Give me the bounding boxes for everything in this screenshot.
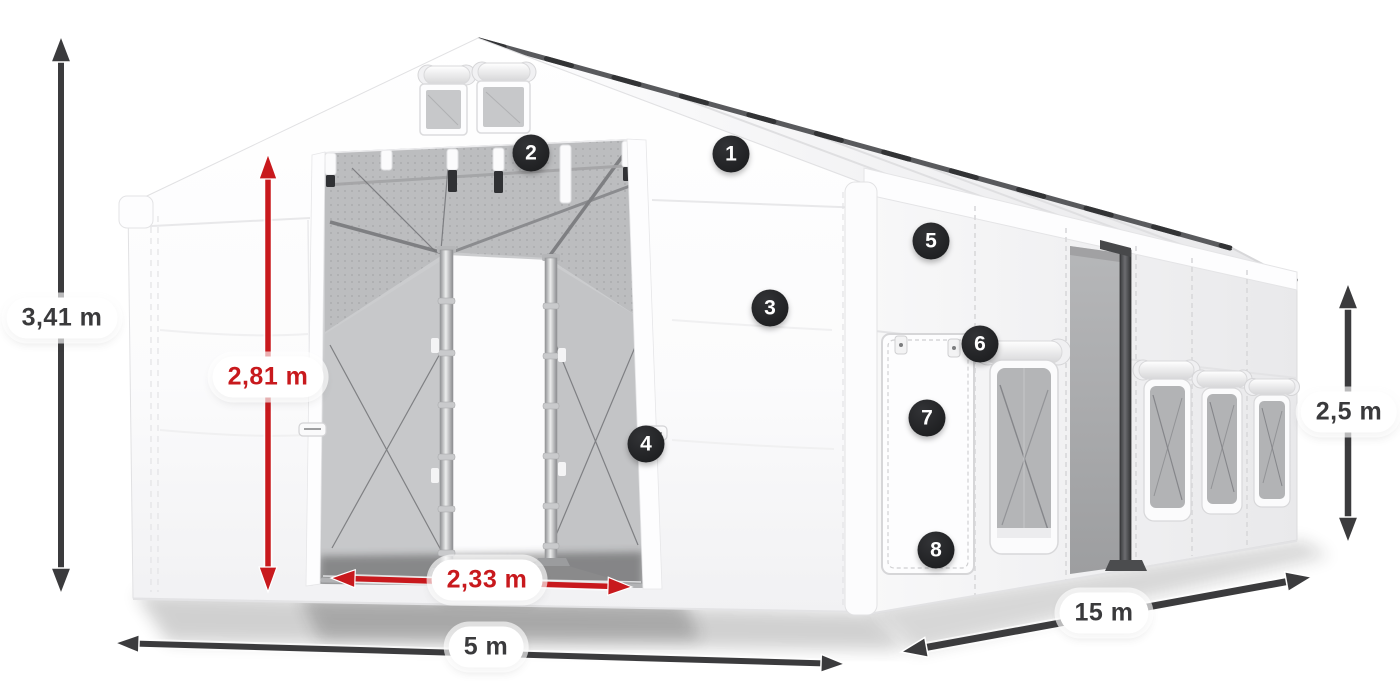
side-door — [882, 334, 974, 574]
arrow-total-height — [51, 36, 71, 594]
tent-dimension-diagram: 3,41 m 2,81 m 2,33 m 5 m 15 m 2,5 m 1 2 … — [0, 0, 1400, 700]
corner-post — [845, 182, 877, 615]
tent-illustration — [0, 0, 1400, 700]
vent-roll — [424, 66, 470, 84]
sliding-door-pole — [1120, 250, 1131, 566]
gable-vents — [418, 62, 536, 135]
rear-opening — [447, 255, 548, 572]
front-doorway-interior — [318, 139, 643, 590]
vent-roll — [478, 63, 530, 81]
arrow-side-height — [1338, 283, 1358, 543]
side-windows-rear — [1133, 360, 1300, 521]
side-window — [975, 339, 1071, 554]
eave-corner-cap — [119, 196, 153, 228]
